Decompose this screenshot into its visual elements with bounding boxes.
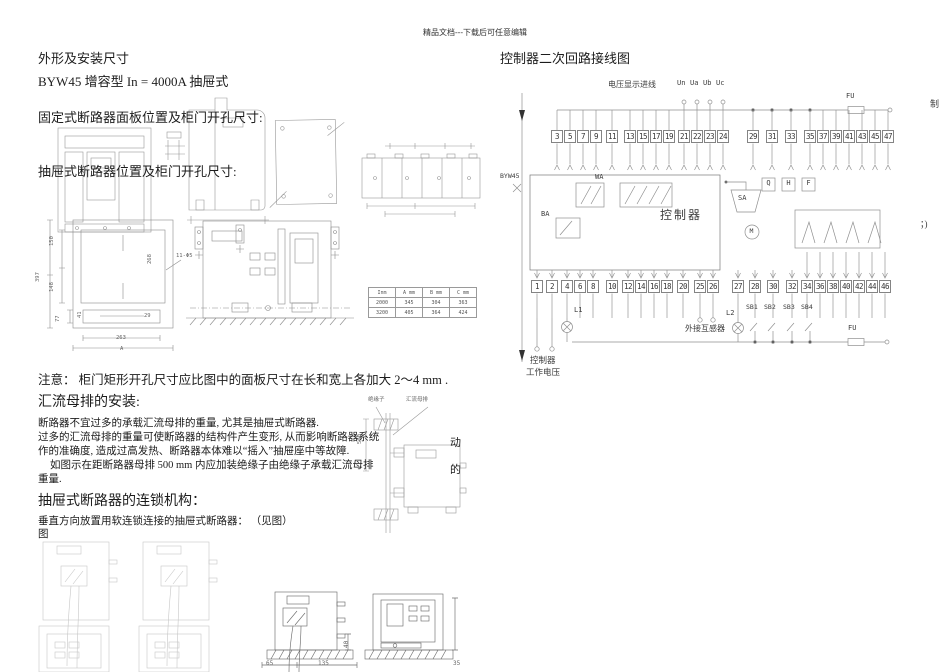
bottom-terminal: 20 bbox=[677, 280, 689, 293]
interlock-drawings bbox=[35, 538, 475, 672]
top-terminal: 37 bbox=[817, 130, 829, 143]
supply-label-line2: 工作电压 bbox=[526, 368, 560, 377]
top-terminal: 43 bbox=[856, 130, 868, 143]
busbar-paragraph-line: 重量. bbox=[38, 473, 458, 487]
bottom-terminal: 2 bbox=[546, 280, 558, 293]
edge-char-top: 制 bbox=[930, 100, 939, 109]
bottom-terminal: 12 bbox=[622, 280, 634, 293]
top-terminal: 24 bbox=[717, 130, 729, 143]
top-terminal: 23 bbox=[704, 130, 716, 143]
voltage-terminal-label: Ua bbox=[690, 80, 698, 87]
ba-label: BA bbox=[541, 211, 549, 218]
arrow-chevron bbox=[568, 165, 573, 170]
bottom-terminal: 36 bbox=[814, 280, 826, 293]
bottom-terminal: 6 bbox=[574, 280, 586, 293]
interlock-figure-ref: 图 bbox=[38, 526, 49, 541]
busbar-paragraph-line: 断路器不宜过多的承载汇流母排的重量, 尤其是抽屉式断路器. bbox=[38, 417, 458, 431]
busbar-paragraph-line: 作的准确度, 造成过高发热、断路器本体难以“摇入”抽屉座中等故障. bbox=[38, 445, 458, 459]
arrow-chevron bbox=[834, 165, 839, 170]
drawer-breaker-drawings bbox=[40, 213, 362, 365]
inset-insulator-label: 绝缘子 bbox=[368, 398, 385, 404]
top-terminal: 5 bbox=[564, 130, 576, 143]
dim-A: A bbox=[120, 347, 123, 353]
top-terminal: 17 bbox=[650, 130, 662, 143]
top-terminal: 33 bbox=[785, 130, 797, 143]
dim-263: 263 bbox=[116, 336, 126, 342]
model-line: BYW45 增容型 In = 4000A 抽屉式 bbox=[38, 71, 228, 90]
supply-label-line1: 控制器 bbox=[530, 356, 556, 365]
dim-397: 397 bbox=[36, 272, 42, 282]
arrow-chevron bbox=[610, 165, 615, 170]
table-cell: 364 bbox=[423, 308, 450, 318]
dim-148: 148 bbox=[50, 282, 56, 292]
arrow-chevron bbox=[695, 165, 700, 170]
top-terminal: 35 bbox=[804, 130, 816, 143]
arrow-chevron bbox=[594, 165, 599, 170]
note-line: 注意： 柜门矩形开孔尺寸应比图中的面板尺寸在长和宽上各加大 2～4 mm . bbox=[38, 369, 448, 388]
arrow-chevron bbox=[581, 165, 586, 170]
busbar-paragraph-line: 如图示在距断路器母排 500 mm 内应加装绝缘子由绝缘子承载汇流母排 bbox=[38, 459, 458, 473]
arrow-chevron bbox=[682, 165, 687, 170]
wrapped-char-1: 动 bbox=[450, 434, 461, 450]
lamp2-label: L2 bbox=[726, 310, 734, 317]
arrow-chevron bbox=[886, 165, 891, 170]
table-cell: 345 bbox=[396, 298, 423, 308]
aux-label: F bbox=[802, 180, 815, 187]
bottom-terminal: 40 bbox=[840, 280, 852, 293]
top-terminal: 7 bbox=[577, 130, 589, 143]
dim-29: 29 bbox=[144, 314, 151, 320]
top-terminal: 47 bbox=[882, 130, 894, 143]
dim-150: 150 bbox=[50, 236, 56, 246]
table-cell: 424 bbox=[450, 308, 477, 318]
bottom-terminal: 18 bbox=[661, 280, 673, 293]
aux-label: H bbox=[782, 180, 795, 187]
arrow-chevron bbox=[751, 165, 756, 170]
dim-65: 65 bbox=[266, 661, 273, 667]
wiring-diagram-lines bbox=[500, 80, 948, 390]
top-terminal: 39 bbox=[830, 130, 842, 143]
fuse-bottom-label: FU bbox=[848, 325, 856, 332]
interlock-heading: 抽屉式断路器的连锁机构： bbox=[38, 490, 206, 510]
table-header-cell: Inm bbox=[369, 288, 396, 298]
table-cell: 405 bbox=[396, 308, 423, 318]
fixed-type-caption: 固定式断路器面板位置及柜门开孔尺寸: bbox=[38, 107, 263, 126]
busbar-paragraph-line: 过多的汇流母排的重量可使断路器的结构件产生变形, 从而影响断路器系统 bbox=[38, 431, 458, 445]
pushbutton-label: SB3 bbox=[783, 304, 795, 311]
arrow-chevron bbox=[808, 165, 813, 170]
wiring-diagram: 电压显示进线 BYW45 FU 制 WA BA 控制器 SA M ；) L1 L… bbox=[500, 80, 948, 390]
bottom-terminal: 46 bbox=[879, 280, 891, 293]
table-header-cell: C mm bbox=[450, 288, 477, 298]
bottom-terminal: 14 bbox=[635, 280, 647, 293]
wa-label: WA bbox=[595, 174, 603, 181]
breaker-label: BYW45 bbox=[500, 173, 520, 180]
arrow-chevron bbox=[873, 165, 878, 170]
arrow-chevron bbox=[847, 165, 852, 170]
table-cell: 363 bbox=[450, 298, 477, 308]
bottom-terminal: 30 bbox=[767, 280, 779, 293]
ct-label: 外接互感器 bbox=[685, 325, 725, 333]
arrow-chevron bbox=[821, 165, 826, 170]
arrow-chevron bbox=[667, 165, 672, 170]
top-terminal: 3 bbox=[551, 130, 563, 143]
sa-label: SA bbox=[738, 195, 746, 202]
table-cell: 2000 bbox=[369, 298, 396, 308]
arrow-chevron bbox=[721, 165, 726, 170]
arrow-chevron bbox=[555, 165, 560, 170]
dim-35: 35 bbox=[453, 661, 460, 667]
bottom-terminal: 42 bbox=[853, 280, 865, 293]
pushbutton-label: SB2 bbox=[764, 304, 776, 311]
document-page: 精品文档---下载后可任意编辑 bbox=[0, 0, 950, 672]
top-terminal: 41 bbox=[843, 130, 855, 143]
diagram-title: 控制器二次回路接线图 bbox=[500, 48, 630, 67]
table-header-cell: B mm bbox=[423, 288, 450, 298]
controller-label: 控制器 bbox=[660, 209, 702, 221]
bottom-terminal: 10 bbox=[606, 280, 618, 293]
top-terminal: 22 bbox=[691, 130, 703, 143]
arrow-chevron bbox=[628, 165, 633, 170]
arrow-chevron bbox=[654, 165, 659, 170]
drawer-type-caption: 抽屉式断路器位置及柜门开孔尺寸: bbox=[38, 161, 237, 180]
bottom-terminal: 32 bbox=[786, 280, 798, 293]
bottom-terminal: 4 bbox=[561, 280, 573, 293]
motor-label: M bbox=[750, 228, 754, 235]
bottom-terminal: 44 bbox=[866, 280, 878, 293]
lamp1-label: L1 bbox=[574, 307, 582, 314]
arrow-chevron bbox=[641, 165, 646, 170]
busbar-paragraph: 断路器不宜过多的承载汇流母排的重量, 尤其是抽屉式断路器.过多的汇流母排的重量可… bbox=[38, 417, 458, 487]
wrapped-char-2: 的 bbox=[450, 461, 461, 477]
bottom-terminal: 38 bbox=[827, 280, 839, 293]
voltage-terminal-label: Uc bbox=[716, 80, 724, 87]
dim-40: 40 bbox=[344, 641, 350, 648]
bottom-terminal: 34 bbox=[801, 280, 813, 293]
interlock-line: 垂直方向放置用软连锁连接的抽屉式断路器： （见图） bbox=[38, 513, 293, 528]
dimension-table: InmA mmB mmC mm2000345304363320040536442… bbox=[368, 287, 477, 318]
inset-busbar-label: 汇流母排 bbox=[406, 398, 428, 404]
dim-phi: 11-Φ5 bbox=[176, 254, 193, 260]
table-cell: 3200 bbox=[369, 308, 396, 318]
arrow-chevron bbox=[860, 165, 865, 170]
bottom-terminal: 27 bbox=[732, 280, 744, 293]
dim-77: 77 bbox=[56, 315, 62, 322]
arrow-chevron bbox=[770, 165, 775, 170]
bottom-terminal: 16 bbox=[648, 280, 660, 293]
top-terminal: 19 bbox=[663, 130, 675, 143]
dim-135: 135 bbox=[318, 661, 329, 667]
section-title: 外形及安装尺寸 bbox=[38, 48, 129, 67]
top-terminal: 13 bbox=[624, 130, 636, 143]
busbar-heading: 汇流母排的安装: bbox=[38, 391, 140, 411]
bottom-terminal: 26 bbox=[707, 280, 719, 293]
top-terminal: 11 bbox=[606, 130, 618, 143]
watermark-text: 精品文档---下载后可任意编辑 bbox=[0, 27, 950, 38]
pushbutton-label: SB1 bbox=[746, 304, 758, 311]
fuse-top-label: FU bbox=[846, 93, 854, 100]
bottom-terminal: 28 bbox=[749, 280, 761, 293]
top-terminal: 15 bbox=[637, 130, 649, 143]
dim-268: 268 bbox=[148, 254, 154, 264]
voltage-input-label: 电压显示进线 bbox=[608, 81, 656, 89]
bottom-terminal: 25 bbox=[694, 280, 706, 293]
arrow-chevron bbox=[708, 165, 713, 170]
aux-label: Q bbox=[762, 180, 775, 187]
table-header-cell: A mm bbox=[396, 288, 423, 298]
top-terminal: 21 bbox=[678, 130, 690, 143]
voltage-terminal-label: Ub bbox=[703, 80, 711, 87]
pushbutton-label: SB4 bbox=[801, 304, 813, 311]
voltage-terminal-label: Un bbox=[677, 80, 685, 87]
top-terminal: 29 bbox=[747, 130, 759, 143]
dim-41: 41 bbox=[78, 311, 84, 318]
arrow-chevron bbox=[789, 165, 794, 170]
edge-char-right: ；) bbox=[920, 220, 928, 229]
top-terminal: 9 bbox=[590, 130, 602, 143]
bottom-terminal: 1 bbox=[531, 280, 543, 293]
top-terminal: 31 bbox=[766, 130, 778, 143]
top-terminal: 45 bbox=[869, 130, 881, 143]
bottom-terminal: 8 bbox=[587, 280, 599, 293]
table-cell: 304 bbox=[423, 298, 450, 308]
